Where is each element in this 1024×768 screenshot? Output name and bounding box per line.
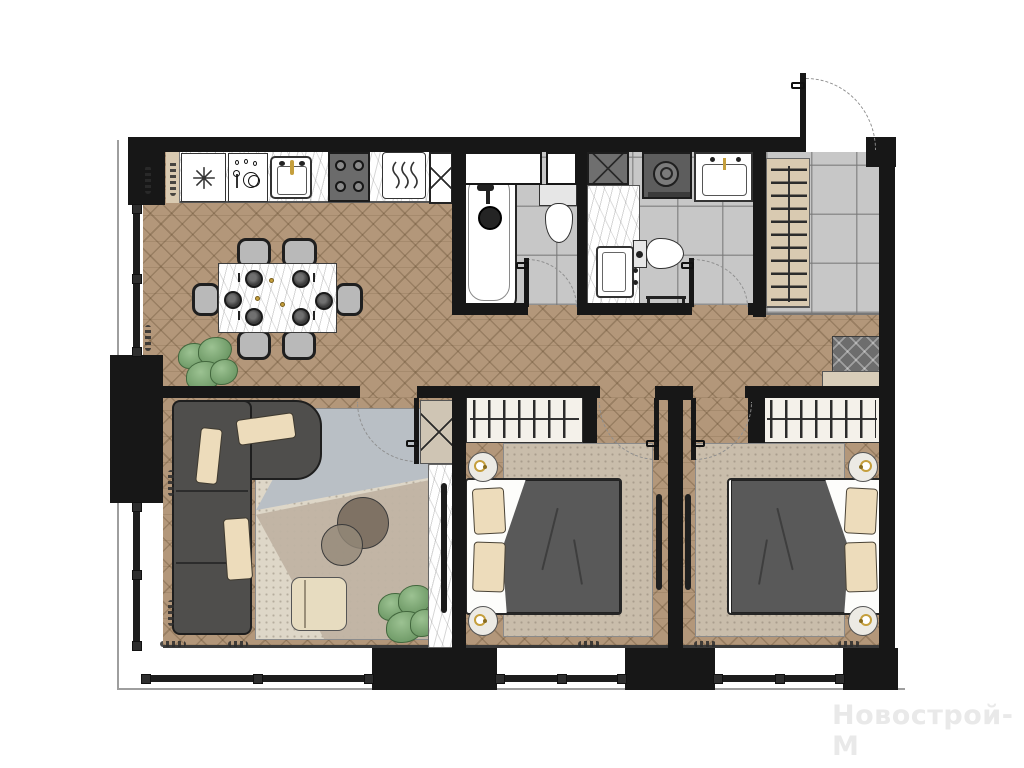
shower-head-icon [477, 184, 494, 191]
stove [328, 152, 370, 202]
dining-chair [335, 283, 363, 316]
faucet-handle [710, 157, 715, 162]
bath2-door-handle [681, 262, 694, 269]
washer-controls [648, 192, 690, 197]
vanity-faucet-dot [633, 280, 638, 285]
burner-icon [335, 181, 346, 192]
bed-pillow [844, 541, 878, 592]
door-swing-arc [806, 78, 876, 150]
bedroom2-bed [727, 478, 884, 615]
wall-corridor-bed2 [745, 386, 895, 398]
blanket-fold [573, 539, 583, 585]
sill-mark [160, 641, 186, 647]
shaft-niche [546, 152, 577, 185]
bed-blanket [502, 480, 620, 613]
bedroom1-bed [465, 478, 622, 615]
dishwasher [228, 153, 268, 202]
sill-mark [145, 325, 151, 351]
wall-top-middle [452, 137, 800, 152]
bed-blanket [731, 480, 849, 613]
wall-bottom-pier [372, 648, 497, 690]
blanket-fold [776, 508, 793, 571]
curtain-squiggle [170, 160, 176, 196]
toilet-2-flush [636, 251, 643, 258]
bath2-sink-counter [694, 152, 753, 202]
lamp-dot [859, 619, 863, 623]
wall-right [879, 150, 895, 655]
place-setting-icon [315, 292, 333, 310]
vanity-faucet-dot [633, 268, 638, 273]
nightstand [468, 452, 498, 482]
lamp-dot [483, 465, 487, 469]
wall-wardrobe1-stub [583, 388, 597, 443]
kitchen-sink [270, 156, 312, 199]
blanket-fold [541, 508, 558, 571]
window-bar [145, 675, 370, 682]
place-setting-icon [245, 308, 263, 326]
drop-icon [235, 160, 239, 165]
nightstand [848, 452, 878, 482]
sofa-pillow [223, 517, 253, 581]
fridge [181, 153, 226, 202]
window-joint [253, 674, 263, 684]
cutlery-icon [313, 311, 315, 320]
kitchen-sink-faucet-icon [290, 160, 294, 175]
window-bar [717, 675, 841, 682]
wall-wardrobe2-stub [748, 388, 765, 443]
window-joint [835, 674, 845, 684]
plate-icon [248, 175, 260, 187]
faucet-handle [736, 157, 741, 162]
armchair-pouf [291, 577, 347, 631]
window-joint [132, 570, 142, 580]
plant-leaf [210, 359, 238, 385]
drop-icon [253, 161, 257, 166]
pouf-seam [304, 580, 306, 628]
bedroom1-wardrobe [466, 394, 583, 443]
window-joint [132, 347, 142, 357]
cutlery-icon [238, 311, 240, 320]
wall-corridor-bed1 [452, 386, 600, 398]
bedroom1-door-handle [646, 440, 659, 447]
bed-pillow [844, 487, 878, 535]
wall-bath2-right [753, 150, 766, 317]
wall-bottom-pier [625, 648, 715, 690]
wall-living-bed1 [452, 398, 466, 648]
bath-faucet-icon [486, 191, 490, 204]
place-setting-icon [245, 270, 263, 288]
wall-bedrooms-central [668, 398, 683, 648]
cutlery-icon [238, 273, 240, 282]
sill-mark [228, 641, 248, 647]
bed-pillow [472, 487, 506, 535]
sill-mark [145, 166, 151, 194]
oven [382, 152, 426, 199]
wall-bath2-bottom [577, 303, 692, 315]
window-joint [132, 274, 142, 284]
vanity-sink-basin [602, 252, 626, 292]
sill-mark [168, 470, 174, 496]
sill-mark [168, 600, 174, 626]
nightstand [848, 606, 878, 636]
tv-icon [685, 494, 691, 590]
hanger-rail-icon [771, 167, 807, 301]
snowflake-fridge-icon [191, 165, 217, 191]
coffee-table-small [321, 524, 363, 566]
entry-closet [766, 158, 810, 308]
blanket-fold [758, 539, 768, 585]
bathtub-drain [478, 206, 502, 230]
living-door-leaf [414, 398, 419, 464]
place-setting-icon [292, 270, 310, 288]
oven-steam-icon [389, 159, 419, 191]
faucet-handle [279, 161, 285, 166]
glass-icon [233, 170, 240, 177]
apartment-floor-plan: Новострой-М [0, 0, 1024, 768]
kitchen-curtain-strip [166, 152, 180, 203]
hanger-rail-icon [473, 400, 578, 438]
window-joint [364, 674, 374, 684]
living-door-handle [406, 440, 419, 447]
window-joint [775, 674, 785, 684]
place-setting-icon [224, 291, 242, 309]
bedroom2-door-leaf [691, 398, 696, 460]
dining-chair [237, 330, 271, 360]
nightstand [468, 606, 498, 636]
kitchen-tall-cabinet [429, 152, 453, 204]
ventilation-shaft-x-icon [587, 152, 629, 185]
facade-line-bottom [117, 688, 905, 690]
window-joint [132, 502, 142, 512]
faucet-handle [299, 161, 305, 166]
window-joint [495, 674, 505, 684]
sill-mark [694, 641, 716, 647]
wall-bath1-left [452, 150, 466, 312]
washing-machine [642, 152, 692, 199]
lamp-dot [859, 465, 863, 469]
bed-pillow [472, 541, 506, 592]
window-joint [132, 204, 142, 214]
sill-mark [578, 641, 600, 647]
wall-top-kitchen [128, 137, 454, 152]
doormat-icon [832, 336, 880, 373]
cushion-line [176, 490, 248, 492]
window-bar [499, 675, 623, 682]
wall-bath-separator [577, 152, 587, 312]
bedroom1-door-leaf [654, 398, 659, 460]
glass-dot [280, 302, 285, 307]
wall-left-pier [110, 355, 163, 503]
place-setting-icon [292, 308, 310, 326]
tv-icon [656, 494, 662, 590]
dining-chair [282, 330, 316, 360]
watermark: Новострой-М [832, 700, 1024, 762]
glass-dot [255, 296, 260, 301]
bath1-door-handle [516, 262, 529, 269]
bathtub [461, 166, 517, 310]
cutlery-icon [313, 273, 315, 282]
glass-dot [269, 278, 274, 283]
wall-bath1-bottom [452, 303, 528, 315]
tv-icon [441, 483, 447, 613]
window-bar [133, 208, 140, 353]
bedroom2-door-handle [692, 440, 705, 447]
washer-spiral [660, 167, 673, 180]
entrance-door-handle [791, 82, 805, 89]
drop-icon [244, 159, 248, 164]
window-joint [617, 674, 627, 684]
burner-icon [353, 160, 364, 171]
bedroom2-wardrobe [763, 394, 881, 443]
wall-bath2-bottom-stub [748, 303, 766, 315]
hanger-rail-icon [770, 400, 876, 438]
bath2-faucet-icon [723, 158, 726, 170]
sill-mark [838, 641, 860, 647]
burner-icon [335, 160, 346, 171]
window-bar [133, 506, 140, 647]
dining-table [218, 263, 337, 333]
lamp-dot [483, 619, 487, 623]
wall-living-dining [163, 386, 360, 398]
wall-bottom-corner [843, 648, 898, 690]
window-joint [713, 674, 723, 684]
window-joint [132, 641, 142, 651]
dining-chair [192, 283, 220, 316]
window-joint [141, 674, 151, 684]
shaft-niche [458, 152, 542, 185]
window-joint [557, 674, 567, 684]
burner-icon [353, 181, 364, 192]
